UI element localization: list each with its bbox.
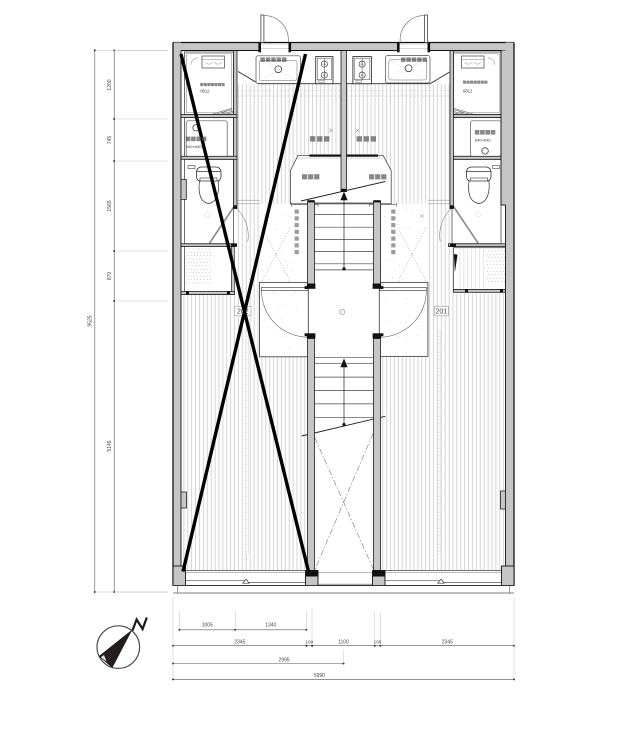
svg-text:1340: 1340 (265, 623, 276, 629)
svg-text:0812: 0812 (200, 88, 210, 93)
svg-text:2345: 2345 (234, 640, 245, 646)
svg-text:640×640: 640×640 (186, 144, 202, 149)
svg-text:100: 100 (374, 640, 382, 645)
svg-text:9525: 9525 (88, 315, 94, 326)
svg-text:640×640: 640×640 (475, 137, 491, 142)
svg-text:1100: 1100 (338, 640, 349, 646)
svg-text:0812: 0812 (463, 88, 473, 93)
svg-text:2345: 2345 (442, 640, 453, 646)
svg-text:201: 201 (435, 309, 447, 316)
svg-text:1005: 1005 (202, 623, 213, 629)
svg-text:745: 745 (107, 136, 113, 145)
svg-text:1200: 1200 (107, 79, 113, 90)
svg-text:1565: 1565 (107, 200, 113, 211)
svg-text:870: 870 (107, 272, 113, 281)
svg-text:5145: 5145 (107, 440, 113, 451)
svg-text:100: 100 (305, 640, 313, 645)
svg-text:5990: 5990 (314, 673, 325, 679)
svg-text:2995: 2995 (278, 657, 289, 663)
